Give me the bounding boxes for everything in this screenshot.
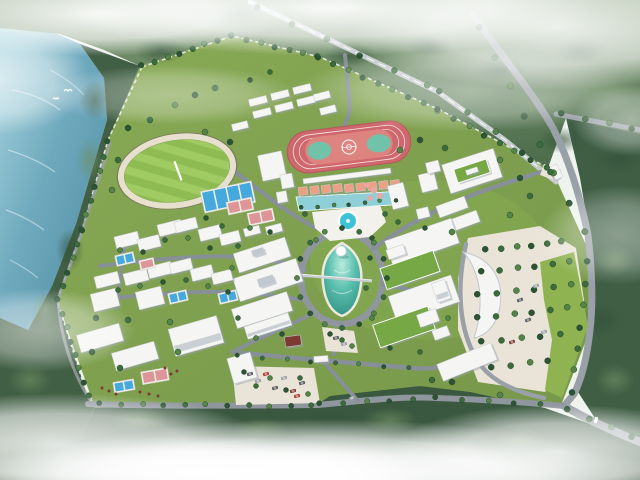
tree [481, 133, 487, 139]
sphere-fountain [336, 246, 346, 256]
tree [138, 284, 143, 289]
tree [117, 365, 123, 371]
tree [547, 307, 553, 313]
tree [396, 220, 401, 225]
tree [289, 403, 294, 408]
tree [227, 139, 233, 145]
tree [294, 275, 299, 280]
tree [104, 138, 110, 144]
tree [478, 268, 484, 274]
tree [64, 270, 70, 276]
tree [449, 379, 455, 385]
tree [115, 157, 121, 163]
scene-canvas [0, 0, 640, 480]
tree [582, 281, 588, 287]
tree [280, 332, 285, 337]
building [314, 355, 330, 364]
tree [236, 244, 241, 249]
tree [78, 226, 84, 232]
tree [101, 154, 107, 160]
tree [512, 148, 518, 154]
tree [220, 224, 225, 229]
tree [370, 236, 375, 241]
tree [206, 284, 211, 289]
tree [267, 404, 272, 409]
tree [230, 266, 235, 271]
building [276, 190, 290, 205]
tree [370, 316, 375, 321]
tree [83, 212, 89, 218]
tree [527, 359, 533, 365]
tree [527, 193, 533, 199]
tree [557, 331, 563, 337]
planter [367, 195, 373, 201]
tree [459, 397, 464, 402]
tree [363, 201, 367, 205]
tree [328, 332, 333, 337]
tree [515, 265, 521, 271]
fog-patch [40, 65, 300, 125]
tree [268, 376, 273, 381]
tree [248, 226, 253, 231]
tree [332, 203, 336, 207]
tree [378, 199, 382, 203]
tree [486, 398, 491, 403]
tree [339, 225, 344, 230]
tree [364, 286, 369, 291]
tree [299, 205, 303, 209]
tree [478, 338, 484, 344]
tree [411, 397, 416, 402]
tree [167, 319, 173, 325]
tree [268, 70, 273, 75]
planter [170, 373, 173, 376]
tree [306, 392, 311, 397]
tree [97, 168, 103, 174]
tree [547, 169, 553, 175]
tree [383, 212, 388, 217]
tree [350, 344, 355, 349]
tree [537, 141, 543, 147]
tree [333, 361, 337, 365]
tree [517, 175, 523, 181]
tree [497, 157, 503, 163]
tree [284, 388, 289, 393]
tree [446, 316, 451, 321]
tree [551, 284, 557, 290]
tree [482, 246, 488, 252]
tree [388, 346, 393, 351]
tree [161, 280, 166, 285]
tree [298, 295, 303, 300]
tree [575, 346, 581, 352]
tree [242, 370, 247, 375]
tree [208, 246, 213, 251]
tree [474, 314, 480, 320]
planter [176, 370, 179, 373]
tree [204, 216, 209, 221]
tree [497, 140, 503, 146]
tree [357, 322, 362, 327]
tree [365, 399, 370, 404]
tree [118, 248, 123, 253]
tree [341, 401, 346, 406]
tree [254, 384, 259, 389]
tree [442, 145, 448, 151]
tree [564, 304, 570, 310]
building [284, 335, 303, 350]
tree [512, 311, 518, 317]
tree [507, 212, 513, 218]
planter [157, 395, 160, 398]
tree [394, 198, 398, 202]
tree [81, 380, 87, 386]
tree [339, 325, 344, 330]
tree [314, 238, 319, 243]
tree [513, 288, 519, 294]
tree [368, 256, 373, 261]
planter [371, 187, 378, 194]
tree [497, 392, 503, 398]
tree [511, 401, 516, 406]
tree [203, 402, 208, 407]
tree [494, 290, 500, 296]
planter [364, 182, 369, 187]
tree [163, 238, 168, 243]
tree [322, 322, 327, 327]
tree [417, 137, 423, 143]
tree [498, 246, 504, 252]
tree [381, 256, 386, 261]
tree [316, 205, 320, 209]
tree [308, 311, 313, 316]
tree [165, 54, 171, 60]
tree [226, 290, 231, 295]
tree [499, 337, 505, 343]
tree [577, 325, 583, 331]
tree [322, 229, 327, 234]
tree [152, 59, 158, 65]
tree [571, 367, 577, 373]
tree [141, 250, 146, 255]
tree [488, 364, 494, 370]
tree [371, 311, 376, 316]
tree [519, 335, 525, 341]
tree [202, 129, 208, 135]
tree [347, 203, 351, 207]
tree [529, 310, 535, 316]
tree [418, 350, 423, 355]
tree [116, 288, 121, 293]
tree [125, 125, 131, 131]
tree [260, 356, 264, 360]
tree [309, 403, 314, 408]
tree [382, 364, 386, 368]
tree [537, 334, 543, 340]
tree [317, 401, 322, 406]
tree [268, 230, 273, 235]
tree [433, 395, 438, 400]
planter [139, 391, 142, 394]
tree [568, 281, 574, 287]
tree [381, 295, 386, 300]
tree [235, 353, 239, 357]
tree [92, 184, 98, 190]
campus-aerial-render [0, 0, 640, 480]
tree [514, 243, 520, 249]
tree [70, 255, 76, 261]
tree [531, 264, 537, 270]
tree [519, 150, 525, 156]
tree [387, 399, 392, 404]
tree [308, 360, 312, 364]
tree [528, 243, 534, 249]
tree [384, 275, 389, 280]
tree [569, 389, 575, 395]
planter [164, 367, 167, 370]
tree [493, 313, 499, 319]
tree [186, 236, 191, 241]
planter [148, 393, 151, 396]
tree [88, 198, 94, 204]
tree [497, 267, 503, 273]
tree [184, 278, 189, 283]
tree [298, 376, 303, 381]
tree [371, 240, 376, 245]
tree [528, 157, 534, 163]
tree [298, 256, 303, 261]
tree [109, 187, 115, 193]
tree [397, 147, 403, 153]
tree [285, 357, 289, 361]
tree [74, 242, 80, 248]
tree [474, 291, 480, 297]
tree [175, 349, 181, 355]
tree [407, 365, 411, 369]
planter [101, 387, 104, 390]
tree [308, 240, 313, 245]
tree [340, 338, 345, 343]
tree [303, 212, 308, 217]
building [280, 173, 296, 191]
tree [423, 226, 428, 231]
tree [60, 283, 66, 289]
tree [429, 377, 435, 383]
planter [377, 193, 383, 199]
tree [225, 403, 230, 408]
forest-canopy [595, 364, 635, 396]
tree [236, 316, 241, 321]
tree [247, 402, 252, 407]
tree [357, 229, 362, 234]
tree [545, 358, 551, 364]
tree [508, 363, 514, 369]
tree [449, 229, 455, 235]
tree [356, 362, 360, 366]
tree [580, 302, 586, 308]
planter [108, 390, 111, 393]
tree [254, 336, 259, 341]
